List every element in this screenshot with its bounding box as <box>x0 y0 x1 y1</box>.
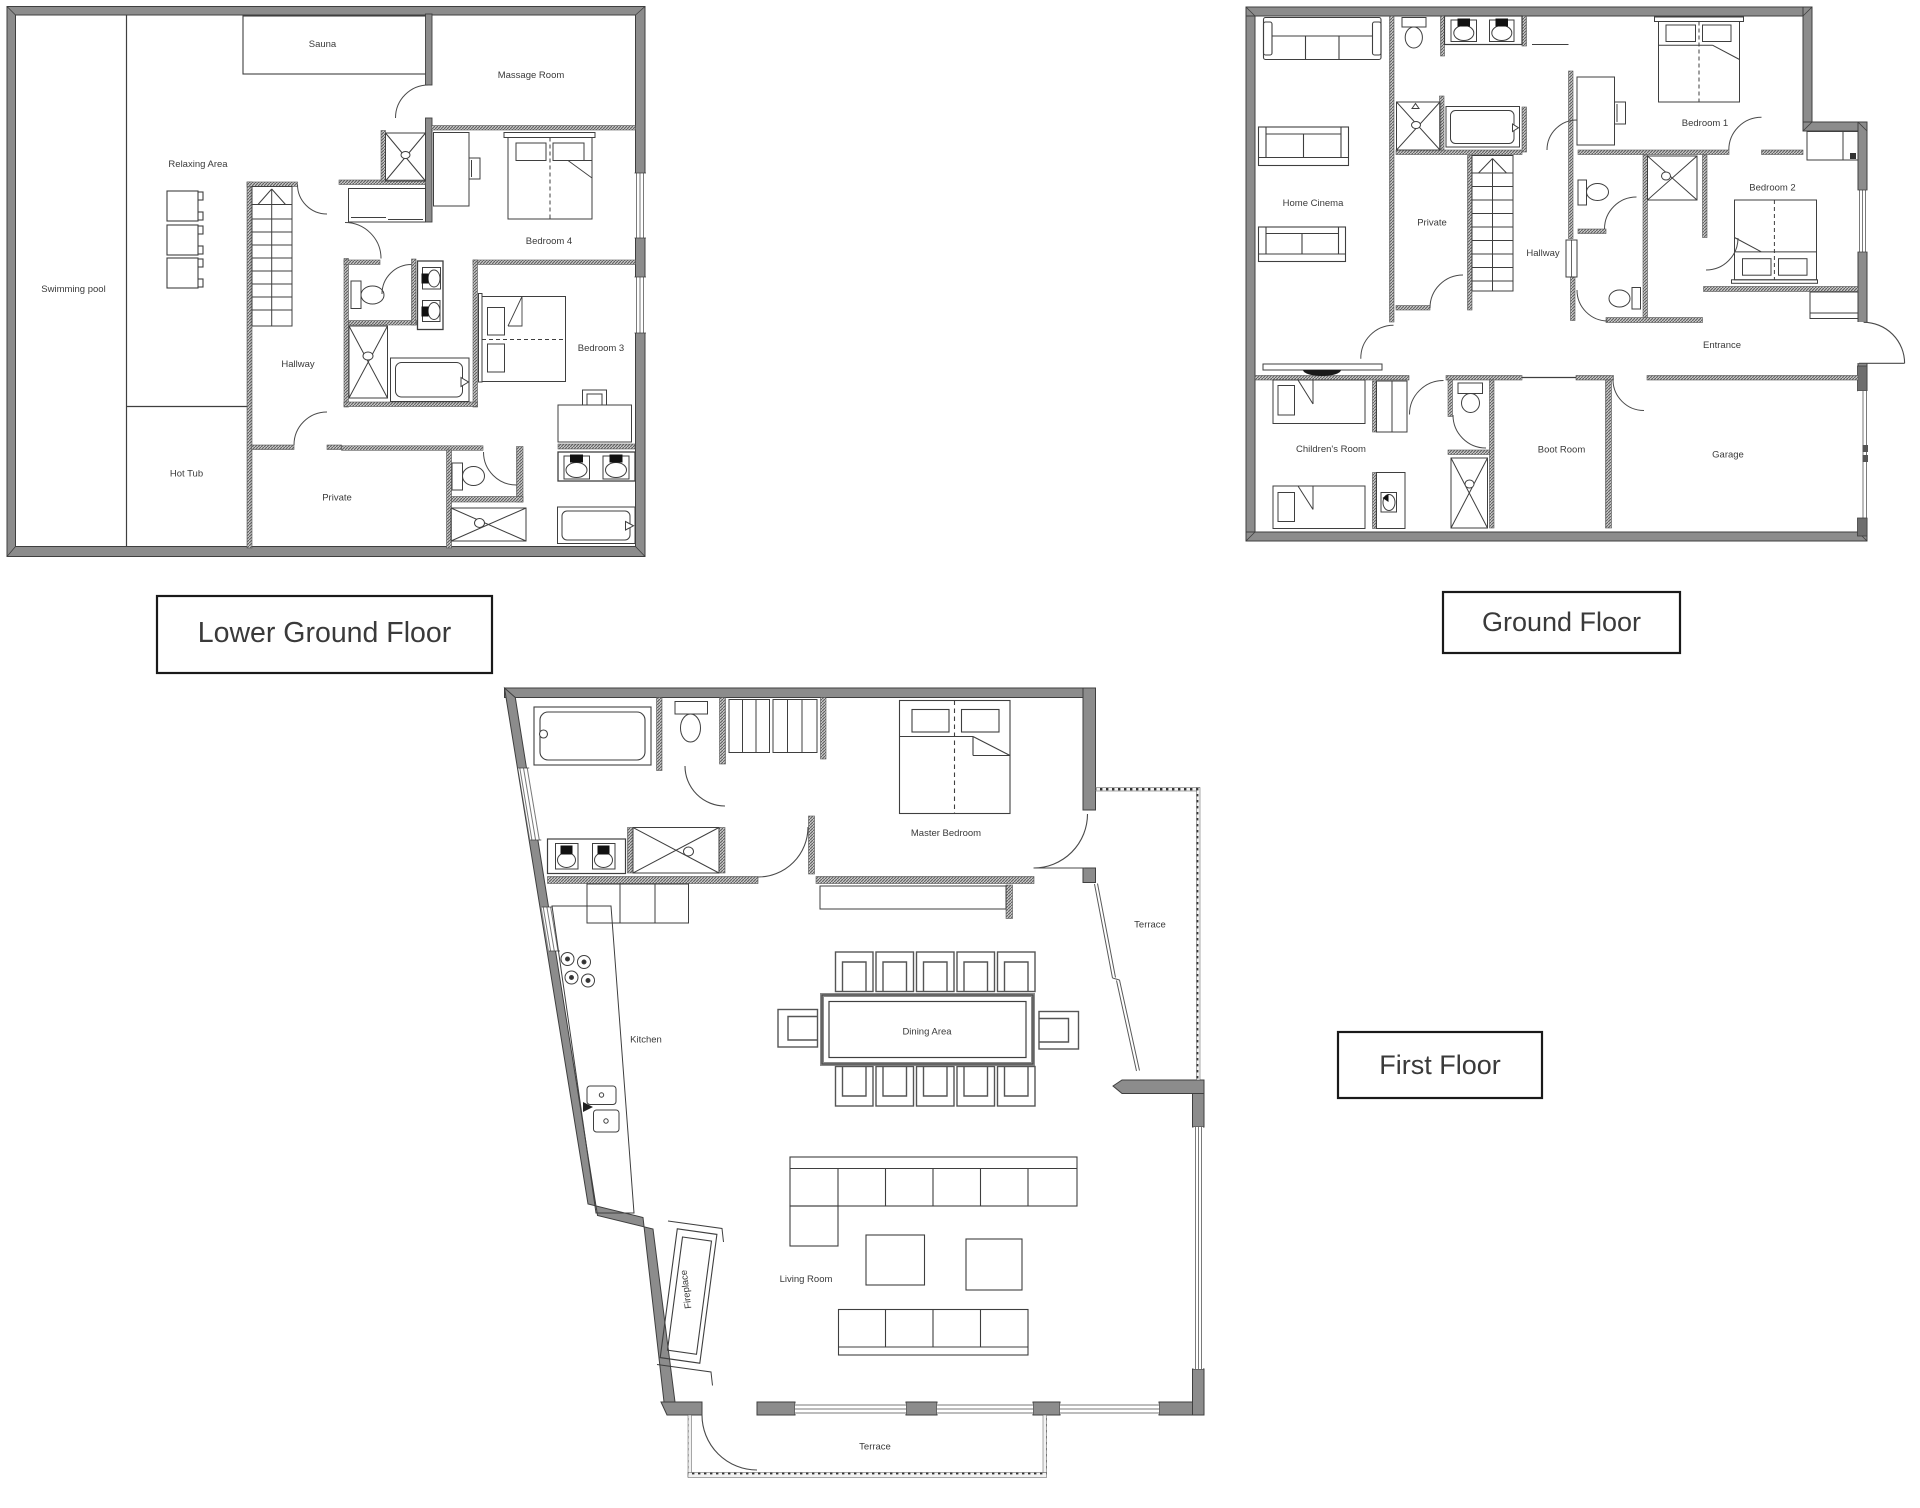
svg-text:Private: Private <box>322 493 352 504</box>
svg-text:First Floor: First Floor <box>1379 1050 1501 1080</box>
svg-text:Boot Room: Boot Room <box>1538 445 1586 456</box>
svg-text:Terrace: Terrace <box>1134 920 1166 931</box>
svg-text:Bedroom 1: Bedroom 1 <box>1682 118 1728 129</box>
svg-text:Hallway: Hallway <box>1526 248 1560 259</box>
svg-text:Home Cinema: Home Cinema <box>1283 198 1344 209</box>
svg-text:Master Bedroom: Master Bedroom <box>911 828 981 839</box>
svg-text:Swimming pool: Swimming pool <box>41 284 105 295</box>
svg-text:Bedroom 3: Bedroom 3 <box>578 343 624 354</box>
svg-text:Terrace: Terrace <box>859 1442 891 1453</box>
svg-text:Ground Floor: Ground Floor <box>1482 607 1641 637</box>
svg-text:Massage Room: Massage Room <box>498 70 565 81</box>
svg-text:Bedroom 2: Bedroom 2 <box>1749 183 1795 194</box>
svg-text:Living Room: Living Room <box>780 1274 833 1285</box>
svg-text:Bedroom 4: Bedroom 4 <box>526 236 572 247</box>
svg-text:Hot Tub: Hot Tub <box>170 469 203 480</box>
svg-text:Dining Area: Dining Area <box>902 1027 952 1038</box>
svg-text:Private: Private <box>1417 218 1447 229</box>
svg-text:Garage: Garage <box>1712 450 1744 461</box>
svg-text:Kitchen: Kitchen <box>630 1035 662 1046</box>
svg-text:Relaxing Area: Relaxing Area <box>168 159 228 170</box>
svg-text:Hallway: Hallway <box>281 359 315 370</box>
svg-text:Children's Room: Children's Room <box>1296 444 1366 455</box>
svg-text:Entrance: Entrance <box>1703 340 1741 351</box>
svg-text:Sauna: Sauna <box>309 39 337 50</box>
svg-text:Lower Ground Floor: Lower Ground Floor <box>198 617 452 649</box>
